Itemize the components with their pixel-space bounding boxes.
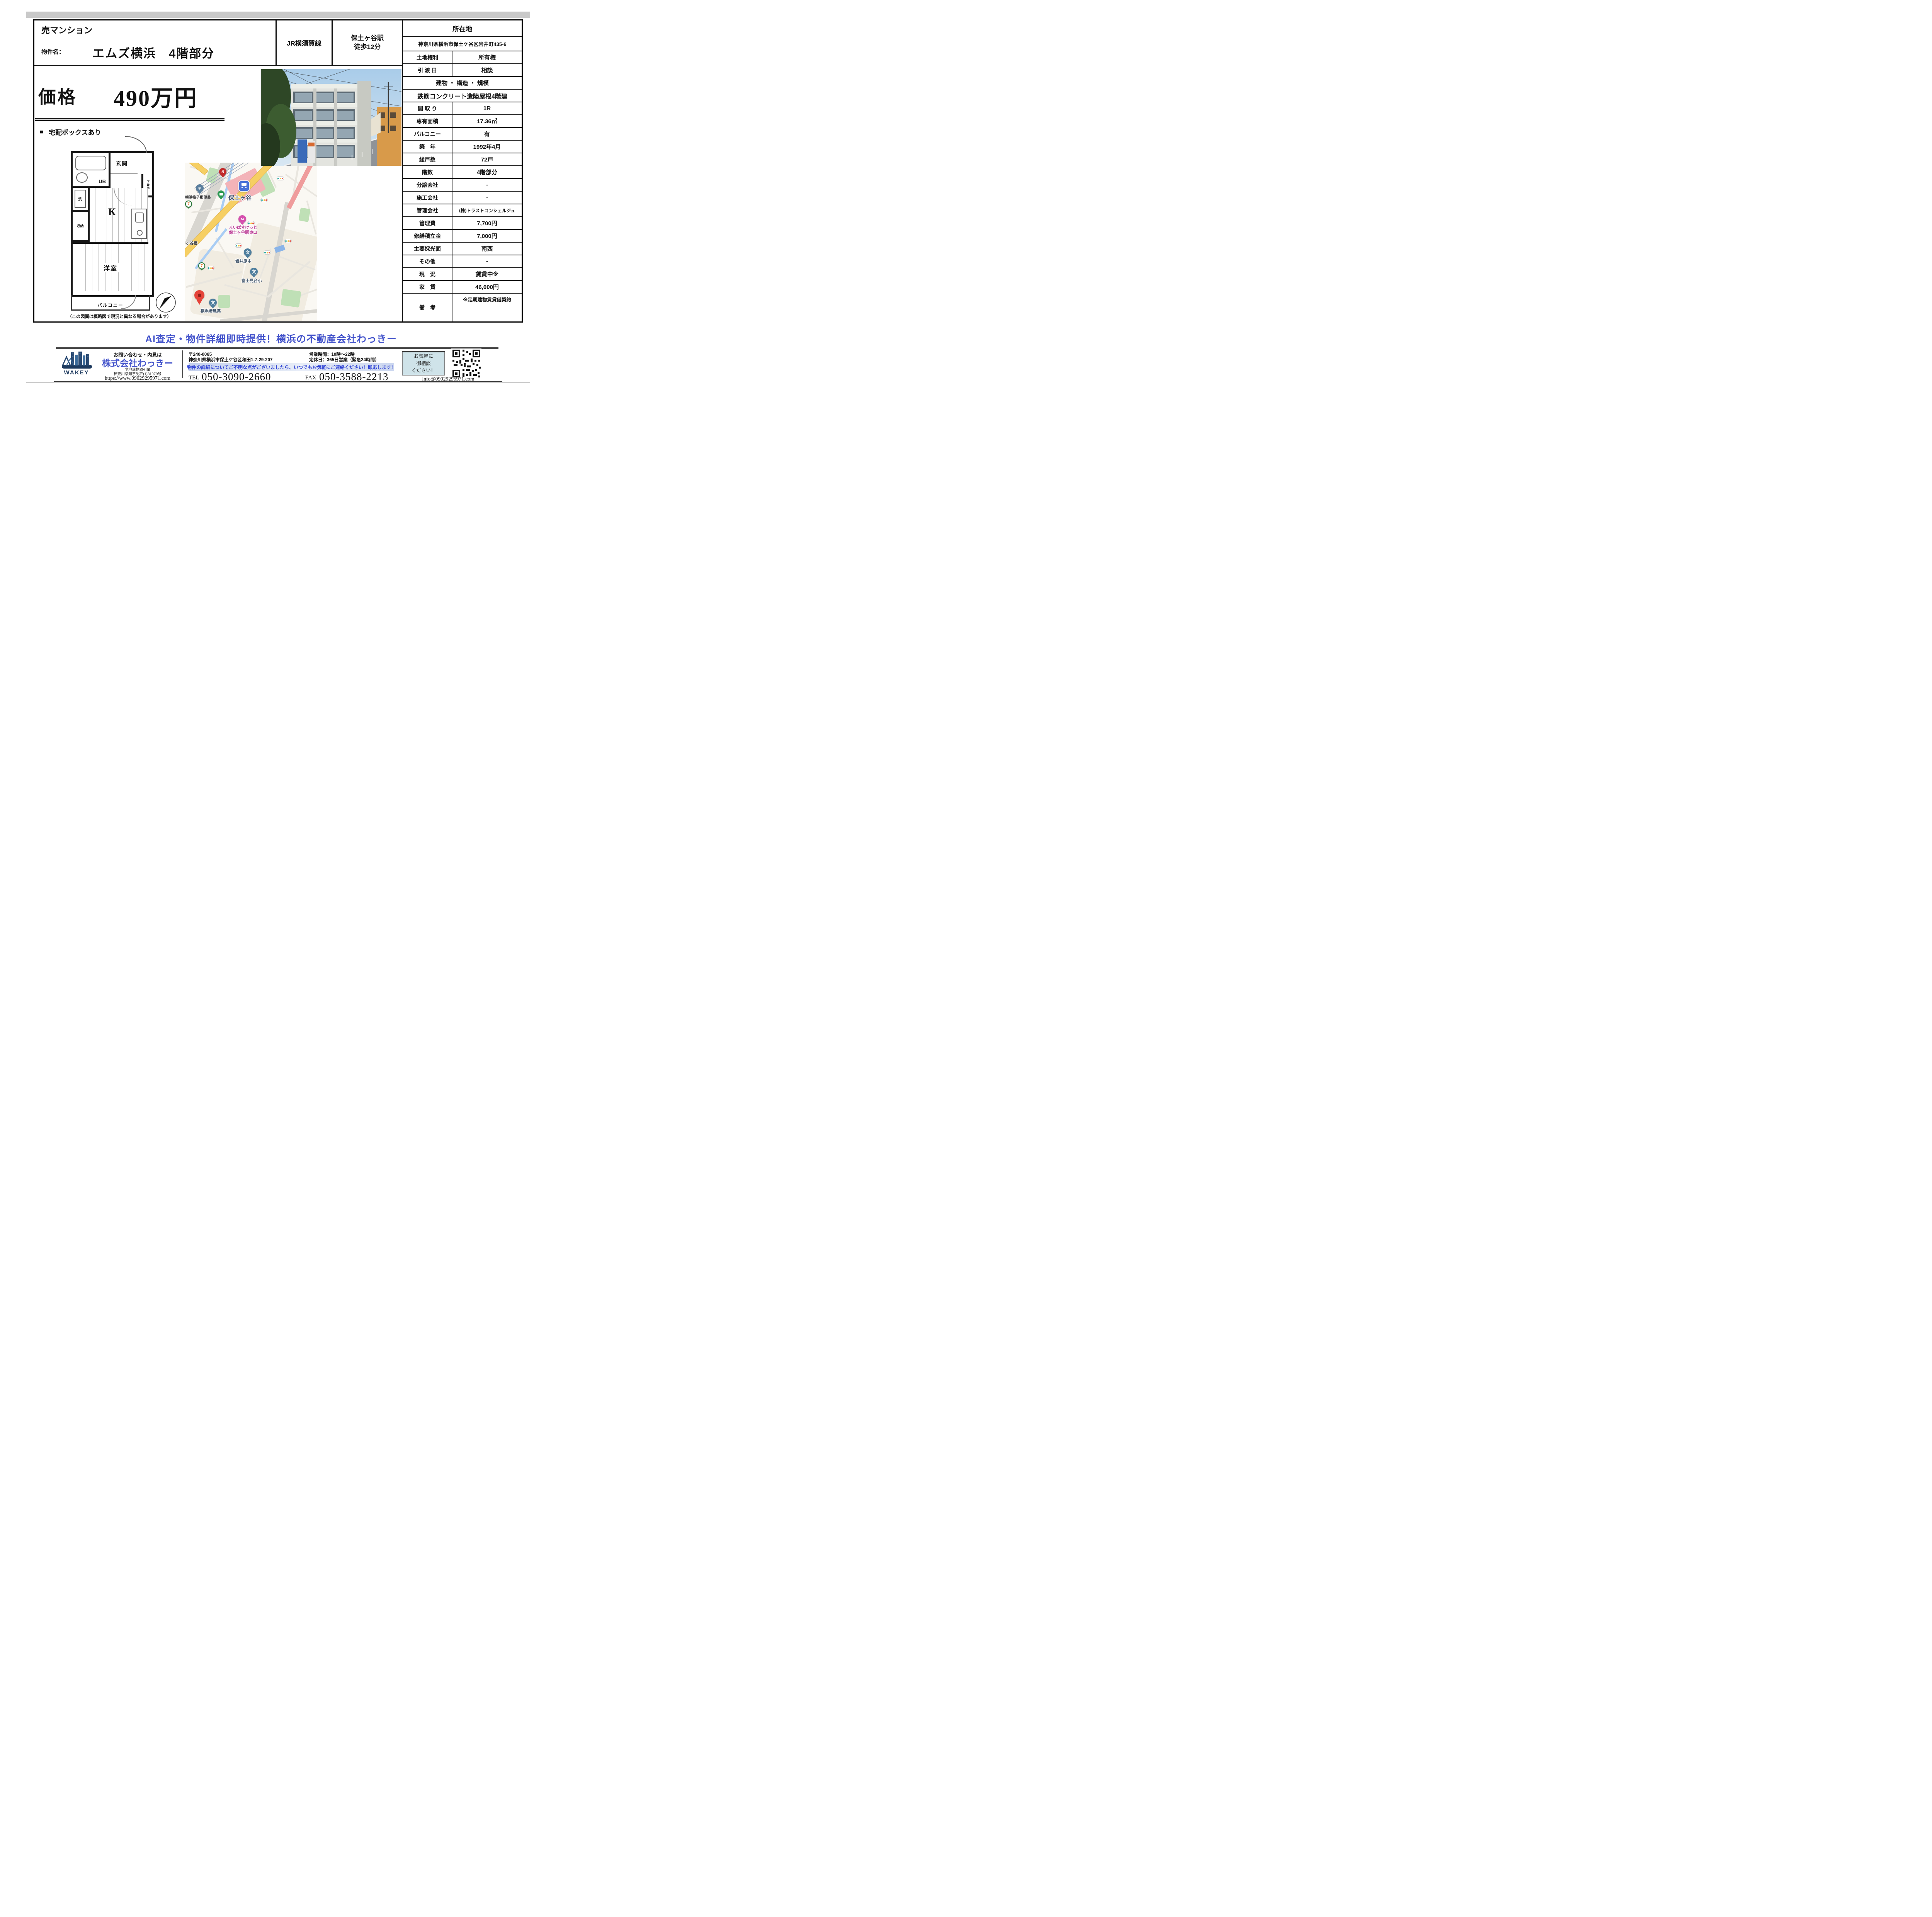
- table-row: 施工会社-: [403, 192, 522, 204]
- table-row: 分譲会社-: [403, 179, 522, 192]
- table-row: 築 年1992年4月: [403, 141, 522, 153]
- entry-step-line: [111, 173, 138, 174]
- traffic-light-icon: [285, 239, 291, 243]
- balcony: バルコニー: [71, 295, 150, 311]
- property-address: 神奈川県横浜市保土ケ谷区岩井町435-6: [403, 37, 522, 51]
- table-row: 引 渡 日相談: [403, 64, 522, 77]
- maibasuketto-pin-icon: 24: [238, 215, 246, 223]
- compass-icon: [155, 292, 177, 315]
- train-station-icon: [238, 180, 250, 192]
- table-row: 管理会社(株)トラストコンシェルジュ: [403, 204, 522, 217]
- bathtub-icon: [75, 156, 106, 170]
- location-header: 所在地: [403, 20, 522, 37]
- property-flyer: 売マンション 物件名： エムズ横浜 4階部分 JR横須賀線 保土ヶ谷駅 徒歩12…: [0, 0, 542, 383]
- catchphrase-banner: AI査定・物件詳細即時提供！横浜の不動産会社わっきー: [0, 331, 542, 345]
- footer-divider: [56, 347, 498, 349]
- kitchen-area: K: [90, 188, 148, 242]
- table-row: 家 賃46,000円: [403, 281, 522, 294]
- fax-label: FAX: [305, 375, 316, 381]
- unit-bath: UB: [73, 153, 111, 188]
- bullet-icon: ■: [40, 129, 43, 135]
- traffic-light-icon: [277, 177, 284, 180]
- building-header: 建物 ・ 構造 ・ 規模: [403, 77, 522, 90]
- post-office-label: 横浜帷子郵便局: [185, 194, 211, 200]
- price-underline: [35, 118, 224, 121]
- table-row: 総戸数72戸: [403, 153, 522, 166]
- wakey-logo-text: WAKEY: [60, 369, 93, 376]
- consult-box: お気軽に 御相談 ください！: [402, 351, 445, 376]
- holiday-info: 定休日：365日営業（緊急24時間）: [309, 357, 379, 363]
- laundry-space: 洗: [73, 188, 90, 212]
- contact-notice-banner: 物件の詳細についてご不明な点がございましたら、いつでもお気軽にご連絡ください！即…: [189, 363, 394, 371]
- property-type: 売マンション: [41, 24, 92, 36]
- seven-eleven-pin-icon: 7: [198, 262, 205, 269]
- left-area: 価格 490万円 ■ 宅配ボックスあり UB 玄関 下駄箱: [34, 66, 402, 321]
- traffic-light-icon: [261, 198, 267, 202]
- floorplan-walls: UB 玄関 下駄箱 洗 収納 K 洋室: [71, 151, 154, 297]
- building-photo: [261, 69, 401, 166]
- table-row: 現 況賃貸中※: [403, 268, 522, 281]
- traffic-light-icon: [264, 251, 270, 254]
- table-row: 土地権利所有権: [403, 51, 522, 64]
- elementary-label: 富士見台小: [241, 278, 262, 284]
- wakey-logo: [61, 351, 93, 371]
- table-row: 主要採光面南西: [403, 243, 522, 255]
- table-row: 管理費7,700円: [403, 217, 522, 230]
- feature-note: ■ 宅配ボックスあり: [40, 127, 101, 137]
- footer-vertical-divider: [182, 350, 183, 378]
- post-office-pin-icon: 〒: [196, 184, 204, 192]
- high-school-label: 横浜清風高: [201, 308, 221, 314]
- property-name: エムズ横浜 4階部分: [92, 44, 214, 61]
- floorplan-caption: （この図面は概略図で現況と異なる場合があります）: [53, 313, 186, 319]
- red-location-pin-icon: [194, 290, 204, 300]
- rail-line-cell: JR横須賀線: [277, 20, 333, 66]
- gusto-pin-icon: ガ: [219, 168, 226, 175]
- table-row: 階数4階部分: [403, 166, 522, 179]
- table-row: 間 取 り1R: [403, 102, 522, 115]
- building-structure: 鉄筋コンクリート造陸屋根4階建: [403, 90, 522, 102]
- office-address: 神奈川県横浜市保土ケ谷区和田1-7-29-207: [189, 357, 272, 363]
- convenience-pin-icon: [218, 190, 224, 197]
- company-url: https://www.09029295971.com: [89, 375, 186, 381]
- table-row: 専有面積17.36㎡: [403, 115, 522, 128]
- tel-label: TEL: [189, 375, 199, 381]
- details-table: 所在地 神奈川県横浜市保土ケ谷区岩井町435-6 土地権利所有権 引 渡 日相談…: [402, 20, 522, 321]
- kitchen-counter-icon: [131, 209, 147, 239]
- school-pin-icon: 文: [209, 299, 217, 306]
- station-map-label: 保土ヶ谷: [228, 194, 252, 202]
- bridge-label: ヶ谷橋: [186, 240, 197, 246]
- remarks-row: 備 考※定期建物賃貸借契約: [403, 294, 522, 321]
- balcony-door-arc-icon: [121, 295, 136, 309]
- top-gray-bar: [26, 12, 530, 18]
- price-label: 価格: [38, 83, 77, 109]
- school-pin-icon: 文: [244, 248, 252, 256]
- genkan-label: 玄関: [116, 159, 128, 167]
- storage-closet: 収納: [73, 212, 90, 242]
- station-walk: 徒歩12分: [354, 43, 381, 52]
- entrance-door-arc-icon: [125, 136, 147, 153]
- western-room: 洋室: [73, 242, 148, 291]
- toilet-icon: [76, 172, 88, 183]
- main-box: 売マンション 物件名： エムズ横浜 4階部分 JR横須賀線 保土ヶ谷駅 徒歩12…: [33, 19, 523, 323]
- station-name: 保土ヶ谷駅: [351, 34, 384, 43]
- floorplan: UB 玄関 下駄箱 洗 収納 K 洋室: [67, 138, 184, 319]
- property-name-label: 物件名：: [41, 48, 65, 56]
- bottom-gray-bar: [26, 382, 530, 383]
- junior-high-label: 岩井原中: [235, 258, 252, 264]
- location-map: 保土ヶ谷 ガ 〒 横浜帷子郵便局 7 7 24 まいばすけっと 保土ヶ谷駅東口 …: [185, 163, 317, 321]
- table-row: 修繕積立金7,000円: [403, 230, 522, 243]
- station-cell: 保土ヶ谷駅 徒歩12分: [333, 20, 402, 66]
- table-row: その他-: [403, 255, 522, 268]
- traffic-light-icon: [248, 221, 254, 225]
- traffic-light-icon: [207, 266, 214, 270]
- price-value: 490万円: [114, 80, 198, 112]
- table-row: バルコニー有: [403, 128, 522, 141]
- school-pin-icon: 文: [250, 268, 258, 275]
- seven-eleven-pin-icon: 7: [185, 201, 192, 207]
- feature-text: 宅配ボックスあり: [49, 127, 101, 137]
- traffic-light-icon: [235, 244, 242, 247]
- interior-door-arc-icon: [114, 188, 132, 206]
- maibasuketto-label-2: 保土ヶ谷駅東口: [218, 229, 268, 235]
- title-cell: 売マンション 物件名： エムズ横浜 4階部分: [34, 20, 277, 66]
